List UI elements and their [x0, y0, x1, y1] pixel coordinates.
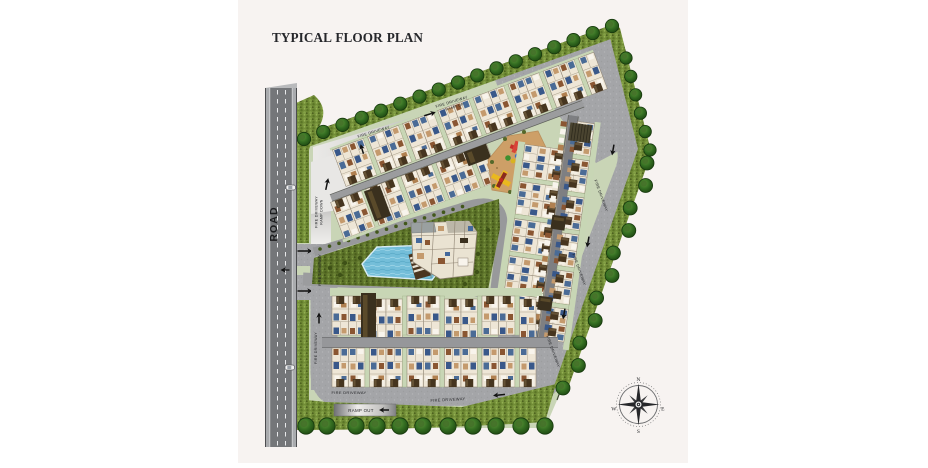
svg-text:TYPICAL FLOOR PLAN: TYPICAL FLOOR PLAN — [272, 30, 423, 45]
svg-text:N: N — [636, 377, 640, 383]
svg-text:S: S — [637, 429, 640, 435]
svg-text:E: E — [661, 407, 665, 413]
svg-text:FIRE DRIVEWAY: FIRE DRIVEWAY — [315, 196, 319, 228]
svg-text:FIRE DRIVEWAY: FIRE DRIVEWAY — [314, 332, 318, 364]
svg-text:W: W — [611, 407, 617, 413]
svg-text:RAMP DOWN: RAMP DOWN — [320, 199, 324, 224]
svg-text:RAMP OUT: RAMP OUT — [348, 408, 374, 413]
svg-text:FIRE DRIVEWAY: FIRE DRIVEWAY — [331, 390, 366, 395]
svg-text:FIRE DRIVEWAY: FIRE DRIVEWAY — [318, 254, 322, 286]
svg-text:ROAD: ROAD — [268, 206, 280, 241]
